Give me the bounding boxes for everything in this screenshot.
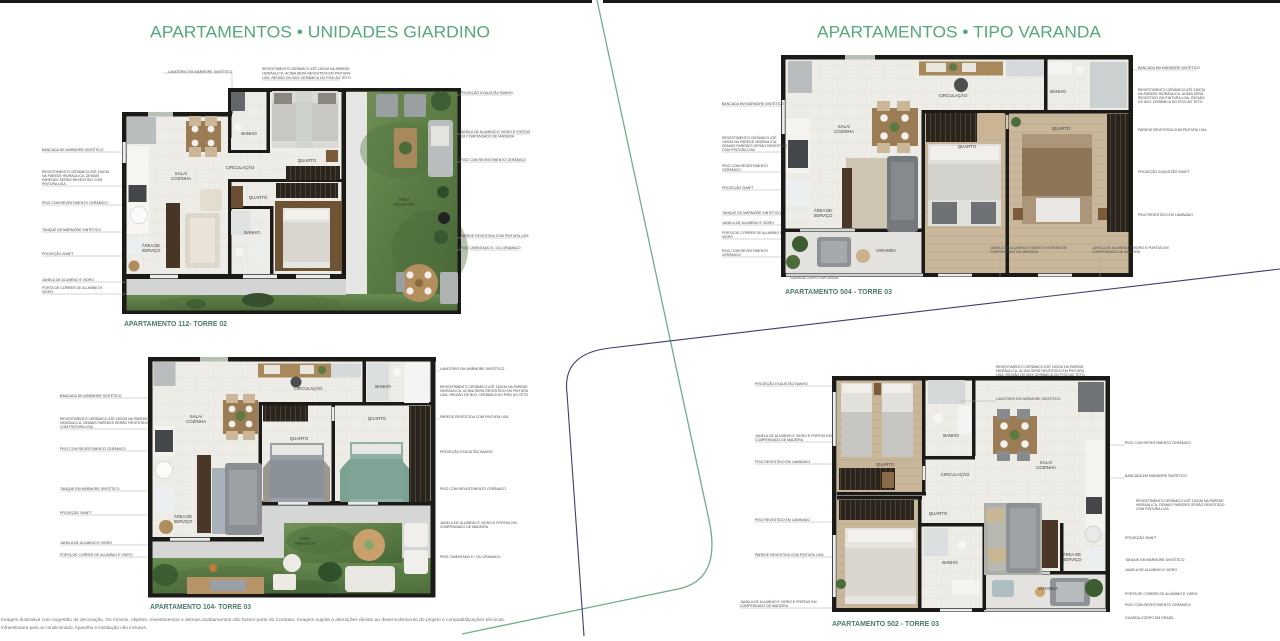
svg-text:BANHO: BANHO [375,384,391,389]
svg-text:COM PINTURA LISA: COM PINTURA LISA [722,148,756,152]
svg-text:PROJEÇÃO SHAFT: PROJEÇÃO SHAFT [722,185,755,190]
svg-text:PROJEÇÃO SHAFT: PROJEÇÃO SHAFT [60,510,93,515]
svg-text:PAREDE REVESTIDA COM PINTURA L: PAREDE REVESTIDA COM PINTURA LISA [460,234,529,238]
svg-text:PISO COM REVESTIMENTO CERÂMICO: PISO COM REVESTIMENTO CERÂMICO [440,487,506,491]
svg-text:PISO CIMENTADO E / OU GRAMADO: PISO CIMENTADO E / OU GRAMADO [440,555,501,559]
svg-text:PISO CIMENTADO E / OU GRAMADO: PISO CIMENTADO E / OU GRAMADO [460,246,521,250]
svg-text:VARANDA: VARANDA [1038,586,1058,591]
svg-text:APARTAMENTO 504 - TORRE 03: APARTAMENTO 504 - TORRE 03 [785,289,892,296]
svg-text:REVESTIMENTO CERÂMICO ATÉ 150C: REVESTIMENTO CERÂMICO ATÉ 150CM NA PARED… [262,66,350,71]
svg-text:BANHO: BANHO [942,560,958,565]
svg-text:BANHO: BANHO [1050,89,1066,94]
svg-text:PROJEÇÃO EXAUSTÃO BANHO: PROJEÇÃO EXAUSTÃO BANHO [755,381,808,386]
svg-text:JANELA DE ALUMÍNIO E VIDRO: JANELA DE ALUMÍNIO E VIDRO [42,278,94,282]
svg-text:SERVIÇO: SERVIÇO [174,519,194,524]
svg-text:BANCADA EM MÁRMORE SINTÉTICO: BANCADA EM MÁRMORE SINTÉTICO [1125,473,1187,478]
svg-text:TANQUE EM MÁRMORE SINTÉTICO: TANQUE EM MÁRMORE SINTÉTICO [60,486,120,491]
svg-text:GUARDA-CORPO EM GRADIL: GUARDA-CORPO EM GRADIL [1125,616,1174,620]
svg-text:COZINHA: COZINHA [171,176,191,181]
svg-text:PORTA DE CORRER DE ALUMÍNIO E: PORTA DE CORRER DE ALUMÍNIO E VIDRO [1125,592,1198,596]
svg-text:CIRCULAÇÃO: CIRCULAÇÃO [939,93,968,98]
svg-text:TANQUE DE MÁRMORE SINTÉTICO: TANQUE DE MÁRMORE SINTÉTICO [42,227,101,232]
svg-text:SERVIÇO: SERVIÇO [814,213,834,218]
svg-text:LISA. REGIÃO DO BOX CERÂMICA D: LISA. REGIÃO DO BOX CERÂMICA DO PISO AO … [262,75,351,80]
svg-text:CERÂMICO: CERÂMICO [722,168,741,172]
svg-text:BANHO: BANHO [244,230,260,235]
svg-text:QUARTO: QUARTO [1052,126,1071,131]
svg-text:PISO REVESTIDO EM LAMINADO: PISO REVESTIDO EM LAMINADO [755,518,810,522]
svg-text:SERVIÇO: SERVIÇO [1063,557,1083,562]
svg-text:QUARTO: QUARTO [958,144,977,149]
svg-text:APARTAMENTO 112- TORRE 02: APARTAMENTO 112- TORRE 02 [124,321,227,328]
svg-text:QUARTO: QUARTO [876,462,895,467]
svg-text:PISO COM REVESTIMENTO CERÂMICO: PISO COM REVESTIMENTO CERÂMICO [460,158,526,162]
svg-text:DO BOX CERÂMICA DO PISO AO TET: DO BOX CERÂMICA DO PISO AO TETO [1138,100,1203,104]
svg-text:QUARTO: QUARTO [290,436,309,441]
svg-text:PROJEÇÃO SHAFT: PROJEÇÃO SHAFT [42,251,75,256]
svg-text:PISO REVESTIDO EM LAMINADO: PISO REVESTIDO EM LAMINADO [1138,213,1193,217]
svg-text:PINTURA LISA: PINTURA LISA [42,182,66,186]
svg-text:APARTAMENTOS • TIPO VARANDA: APARTAMENTOS • TIPO VARANDA [817,24,1101,42]
svg-text:COM PINTURA LISA: COM PINTURA LISA [60,425,94,429]
svg-text:PISO COM REVESTIMENTO CERÂMICO: PISO COM REVESTIMENTO CERÂMICO [42,201,108,205]
svg-text:EM COMPENSADO DE MADEIRA: EM COMPENSADO DE MADEIRA [460,135,515,139]
svg-text:VARANDA: VARANDA [876,248,896,253]
svg-text:PROJEÇÃO SHAFT: PROJEÇÃO SHAFT [1125,535,1158,540]
svg-text:QUARTO: QUARTO [249,195,268,200]
svg-text:LAVATÓRIO EM MÁRMORE SINTÉTICO: LAVATÓRIO EM MÁRMORE SINTÉTICO [440,366,505,371]
svg-text:CIRCULAÇÃO: CIRCULAÇÃO [941,472,970,477]
svg-text:PISO COM REVESTIMENTO CERÂMICO: PISO COM REVESTIMENTO CERÂMICO [1125,603,1191,607]
svg-text:BANCADA EM MÁRMORE SINTÉTICO: BANCADA EM MÁRMORE SINTÉTICO [1138,65,1200,70]
svg-text:PRIVATIVA: PRIVATIVA [295,541,316,546]
svg-text:PROJEÇÃO EXAUSTÃO BANHO: PROJEÇÃO EXAUSTÃO BANHO [460,90,513,95]
svg-text:LISA. REGIÃO DO BOX CERÂMICA D: LISA. REGIÃO DO BOX CERÂMICA DO PISO AO … [996,372,1085,377]
svg-text:SERVIÇO: SERVIÇO [142,248,162,253]
svg-text:VIDRO: VIDRO [42,290,53,294]
svg-text:BANCADA EM MÁRMORE SINTÉTICO: BANCADA EM MÁRMORE SINTÉTICO [722,101,784,106]
svg-text:PORTA DE CORRER DE ALUMÍNIO E: PORTA DE CORRER DE ALUMÍNIO E VIDRO [60,553,133,557]
svg-text:COZINHA: COZINHA [834,129,854,134]
svg-text:COMPENSADO DE MADEIRA: COMPENSADO DE MADEIRA [1092,250,1141,254]
svg-text:COMPENSADO DE MADEIRA: COMPENSADO DE MADEIRA [440,525,489,529]
svg-text:TANQUE DE MÁRMORE SINTÉTICO: TANQUE DE MÁRMORE SINTÉTICO [722,210,781,215]
svg-text:COM PINTURA LISA: COM PINTURA LISA [1136,507,1170,511]
svg-text:TANQUE EM MÁRMORE SINTÉTICO: TANQUE EM MÁRMORE SINTÉTICO [1125,557,1185,562]
svg-text:LISA. REGIÃO DE BOX CERÂMICA D: LISA. REGIÃO DE BOX CERÂMICA DO PISO AO … [440,392,528,397]
svg-text:PROJEÇÃO EXAUSTÃO SHAFT: PROJEÇÃO EXAUSTÃO SHAFT [1138,169,1191,174]
svg-text:COMPENSADO DE MADEIRA: COMPENSADO DE MADEIRA [990,250,1039,254]
svg-text:JANELA DE ALUMÍNIO E VIDRO: JANELA DE ALUMÍNIO E VIDRO [1125,568,1177,572]
svg-text:BANHO: BANHO [943,433,959,438]
svg-text:CIRCULAÇÃO: CIRCULAÇÃO [226,165,255,170]
svg-text:COMPENSADO DE MADEIRA: COMPENSADO DE MADEIRA [755,438,804,442]
svg-text:BANHO: BANHO [241,131,257,136]
svg-text:HIDRÁULICA. ACIMA SERÁ REVESTI: HIDRÁULICA. ACIMA SERÁ REVESTIDO EM PINT… [262,72,351,76]
svg-text:PROJEÇÃO EXAUSTÃO BANHO: PROJEÇÃO EXAUSTÃO BANHO [440,449,493,454]
svg-text:COZINHA: COZINHA [186,419,206,424]
svg-text:PRIVATIVA: PRIVATIVA [394,202,415,207]
svg-text:PISO REVESTIDO EM LAMINADO: PISO REVESTIDO EM LAMINADO [755,460,810,464]
svg-text:JANELA DE ALUMÍNIO E VIDRO E P: JANELA DE ALUMÍNIO E VIDRO E PORTAS [460,130,531,134]
svg-text:JANELA DE ALUMÍNIO E VIDRO: JANELA DE ALUMÍNIO E VIDRO [722,221,774,225]
svg-text:APARTAMENTO 502 - TORRE 03: APARTAMENTO 502 - TORRE 03 [832,621,939,628]
svg-text:CERÂMICO: CERÂMICO [722,253,741,257]
svg-text:PISO COM REVESTIMENTO CERÂMICO: PISO COM REVESTIMENTO CERÂMICO [60,447,126,451]
svg-text:JANELA DE ALUMÍNIO E VIDRO: JANELA DE ALUMÍNIO E VIDRO [60,541,112,545]
svg-text:PAREDE REVESTIDA COM PINTURA L: PAREDE REVESTIDA COM PINTURA LISA [755,553,824,557]
svg-text:PAREDE REVESTIDA COM PINTURA L: PAREDE REVESTIDA COM PINTURA LISA [1138,128,1207,132]
svg-text:Imagem ilustrativa com sugestã: Imagem ilustrativa com sugestão de decor… [1,617,505,622]
svg-text:BANCADA DE MÁRMORE SINTÉTICO: BANCADA DE MÁRMORE SINTÉTICO [60,393,122,398]
svg-text:Infraestrutura para ar condici: Infraestrutura para ar condicionado. Apa… [1,625,147,630]
svg-text:LAVATÓRIO EM MÁRMORE SINTÉTICO: LAVATÓRIO EM MÁRMORE SINTÉTICO [996,396,1061,401]
svg-text:BANCADA DE MÁRMORE SINTÉTICO: BANCADA DE MÁRMORE SINTÉTICO [42,147,104,152]
svg-text:COMPENSADO DE MADEIRA: COMPENSADO DE MADEIRA [740,604,789,608]
svg-text:COZINHA: COZINHA [1036,465,1056,470]
svg-text:VIDRO: VIDRO [722,235,733,239]
svg-text:CIRCULAÇÃO: CIRCULAÇÃO [294,386,323,391]
svg-text:QUARTO: QUARTO [298,158,317,163]
svg-text:PAREDE REVESTIDA COM PINTURA L: PAREDE REVESTIDA COM PINTURA LISA [440,415,509,419]
svg-text:QUARTO: QUARTO [929,511,948,516]
svg-text:APARTAMENTO 104- TORRE 03: APARTAMENTO 104- TORRE 03 [150,604,251,611]
svg-text:PISO COM REVESTIMENTO CERÂMICO: PISO COM REVESTIMENTO CERÂMICO [1125,441,1191,445]
svg-text:GUARDA-CORPO EM GRADIL: GUARDA-CORPO EM GRADIL [790,276,839,280]
svg-text:APARTAMENTOS • UNIDADES GIARDI: APARTAMENTOS • UNIDADES GIARDINO [150,24,490,42]
svg-text:QUARTO: QUARTO [368,416,387,421]
